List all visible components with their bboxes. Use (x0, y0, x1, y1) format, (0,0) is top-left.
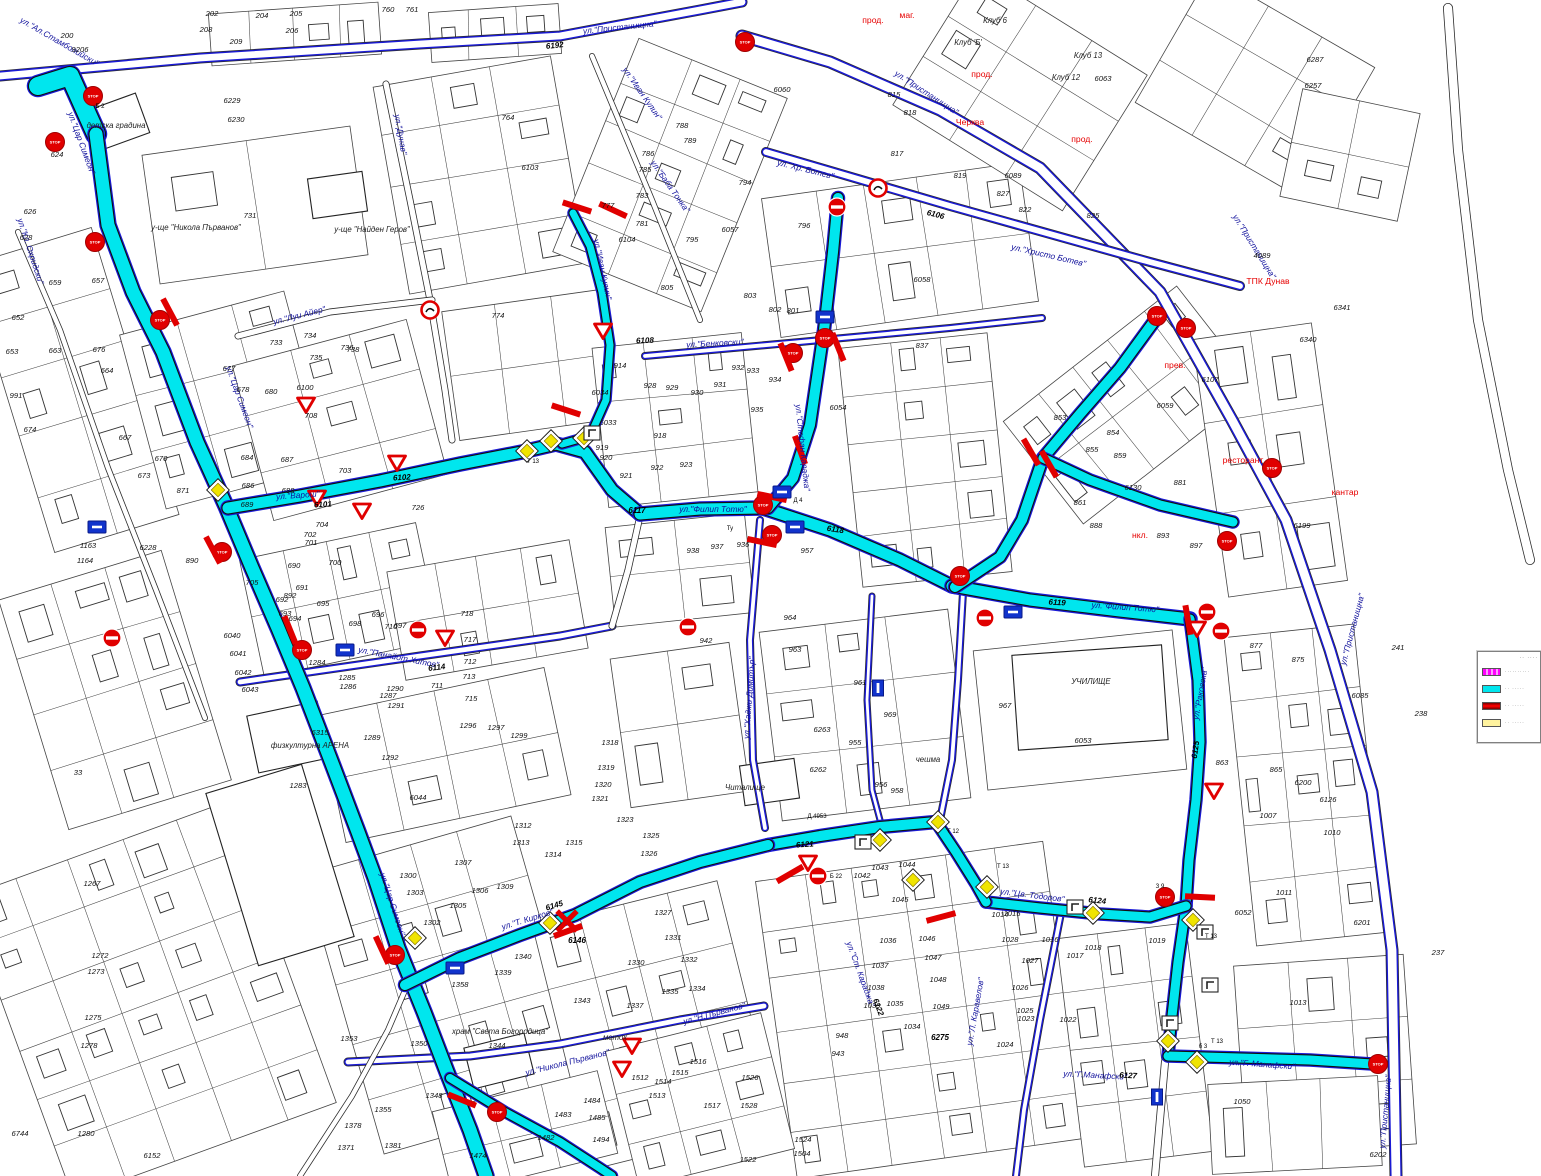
parcel-number-label: 796 (798, 221, 811, 230)
poi-label-red: прод. (971, 69, 992, 79)
parcel-number-label: 1494 (593, 1135, 610, 1144)
parcel-number-label: 963 (789, 645, 802, 654)
parcel-number-label: 628 (20, 233, 33, 242)
parcel-number-label: 1026 (1012, 983, 1030, 992)
building-outline (968, 490, 994, 518)
parcel-number-label: 1296 (460, 721, 478, 730)
building-outline (883, 1029, 904, 1052)
map-canvas[interactable]: STOPSTOPSTOPSTOPSTOPSTOPSTOPSTOPSTOPSTOP… (0, 0, 1541, 1176)
parcel-number-label: 1331 (665, 933, 682, 942)
info-sign-icon (446, 962, 464, 974)
sign-code-label: Т 12 (947, 829, 960, 835)
parcel-number-label: 1287 (380, 691, 398, 700)
parcel-number-label: 789 (684, 136, 697, 145)
parcel-number-label: 1283 (290, 781, 308, 790)
parcel-number-label: 677 (223, 364, 236, 373)
cadastral-map: STOPSTOPSTOPSTOPSTOPSTOPSTOPSTOPSTOPSTOP… (0, 0, 1541, 1176)
parcel-number-label: 817 (891, 149, 904, 158)
stop-sign-icon: STOP (488, 1103, 507, 1122)
parcel-number-label: 938 (687, 546, 700, 555)
poi-label-red: прод. (862, 15, 883, 25)
parcel-number-label: 818 (904, 108, 917, 117)
parcel-number-label: 626 (24, 207, 37, 216)
cyan-swatch-icon (1482, 685, 1501, 693)
parcel-number-label: 690 (288, 561, 301, 570)
poi-label: Клуб 6 (983, 16, 1008, 25)
parcel-number-label: 935 (751, 405, 764, 414)
parcel-number-label: 802 (769, 305, 782, 314)
parcel-number-label: 1343 (574, 996, 592, 1005)
parcel-number-label: 6228 (140, 543, 158, 552)
street-name-label: ул."Ал.Стамболийски" (18, 14, 102, 68)
parcel-number-label: 1314 (545, 850, 562, 859)
stop-sign-icon: STOP (1369, 1055, 1388, 1074)
building-outline (1215, 346, 1248, 386)
parcel-number-label: 785 (639, 165, 652, 174)
building-outline (171, 172, 217, 211)
parcel-number-label: 827 (997, 189, 1010, 198)
signal-box-icon (584, 426, 600, 440)
parcel-number-label: 1038 (868, 983, 886, 992)
parcel-number-label: 726 (412, 503, 425, 512)
svg-text:STOP: STOP (88, 93, 99, 98)
no-entry-sign-icon (976, 609, 994, 627)
parcel-number-label: 1504 (794, 1149, 811, 1158)
parcel-number-label: 961 (854, 678, 867, 687)
parcel-number-label: 1302 (424, 918, 442, 927)
road-number-label: 6102 (393, 473, 412, 483)
building-outline (308, 23, 329, 40)
poi-label: у-ще "Никола Първанов" (150, 223, 242, 232)
parcel-number-label: 1516 (690, 1057, 708, 1066)
parcel-number-label: 890 (186, 556, 199, 565)
parcel-number-label: 1517 (704, 1101, 722, 1110)
building-outline (980, 1013, 995, 1031)
parcel-number-label: 774 (492, 311, 505, 320)
parcel-number-label: 861 (1074, 498, 1087, 507)
parcel-number-label: 209 (229, 37, 243, 46)
parcel-number-label: 1275 (85, 1013, 103, 1022)
building-outline (1223, 1107, 1244, 1157)
street-name-label: ул."Пристанищна" (1230, 212, 1279, 282)
give-way-sign-icon (354, 504, 371, 519)
parcel-number-label: 1485 (589, 1113, 607, 1122)
parcel-number-label: 1045 (892, 895, 910, 904)
parcel-number-label: 653 (6, 347, 19, 356)
parcel-number-label: 6034 (592, 388, 609, 397)
parcel-number-label: 1320 (595, 780, 613, 789)
parcel-number-label: 1024 (997, 1040, 1014, 1049)
building-outline (899, 348, 916, 371)
city-block (553, 38, 788, 311)
parcel-number-label: 1522 (740, 1155, 758, 1164)
parcel-number-label: 1358 (452, 980, 470, 989)
parcel-number-label: 1513 (649, 1091, 667, 1100)
road-number-label: 6192 (545, 40, 564, 51)
parcel-number-label: 881 (1174, 478, 1187, 487)
parcel-number-label: 1348 (426, 1091, 444, 1100)
stop-sign-icon: STOP (46, 133, 65, 152)
parcel-number-label: 670 (155, 454, 168, 463)
no-entry-sign-icon (679, 618, 697, 636)
building-outline (682, 664, 713, 689)
parcel-number-label: 1042 (854, 871, 872, 880)
parcel-number-label: 1039 (864, 1001, 882, 1010)
parcel-number-label: 1339 (495, 968, 513, 977)
parcel-number-label: 1315 (566, 838, 584, 847)
parcel-number-label: 6341 (1334, 303, 1351, 312)
parcel-number-label: 6315 (312, 728, 330, 737)
parcel-number-label: 795 (686, 235, 699, 244)
parcel-number-label: 6052 (1235, 908, 1253, 917)
parcel-number-label: 695 (317, 599, 330, 608)
parcel-number-label: 1309 (497, 882, 515, 891)
parcel-number-label: 888 (1090, 521, 1103, 530)
parcel-number-label: 764 (502, 113, 515, 122)
legend-title: ·· ···· (1482, 655, 1538, 663)
parcel-number-label: 955 (849, 738, 862, 747)
road-number-label: 6124 (1088, 895, 1107, 906)
parcel-number-label: 6130 (1125, 483, 1143, 492)
parcel-number-label: 919 (596, 443, 609, 452)
parcel-number-label: 871 (177, 486, 190, 495)
parcel-number-label: 667 (119, 433, 132, 442)
stop-sign-icon: STOP (736, 33, 755, 52)
parcel-number-label: 937 (711, 542, 724, 551)
poi-label: Читалище (725, 783, 766, 792)
parcel-number-label: 200 (60, 31, 74, 40)
parcel-number-label: 708 (305, 411, 318, 420)
parcel-number-label: 205 (289, 9, 303, 18)
poi-label-red: ТПК Дунав (1246, 276, 1290, 286)
parcel-number-label: 717 (464, 635, 477, 644)
parcel-number-label: 964 (784, 613, 797, 622)
parcel-number-label: 1043 (872, 863, 890, 872)
parcel-number-label: 6057 (722, 225, 740, 234)
parcel-number-label: 1010 (1324, 828, 1342, 837)
parcel-number-label: 6201 (1354, 918, 1371, 927)
parcel-number-label: 711 (431, 681, 443, 690)
parcel-number-label: 1355 (375, 1105, 393, 1114)
one-way-sign-icon (1152, 1089, 1163, 1105)
parcel-number-label: 1019 (1149, 936, 1167, 945)
parcel-number-label: 237 (1431, 948, 1445, 957)
parcel-number-label: 805 (661, 283, 674, 292)
parcel-number-label: 6262 (810, 765, 828, 774)
parcel-number-label: 786 (642, 149, 655, 158)
svg-text:STOP: STOP (767, 532, 778, 537)
building-outline (946, 346, 970, 362)
info-sign-icon (336, 644, 354, 656)
parcel-number-label: 689 (241, 500, 254, 509)
building-outline (635, 743, 663, 785)
parcel-number-label: 684 (241, 453, 254, 462)
parcel-number-label: 659 (49, 278, 62, 287)
parcel-number-label: 1353 (341, 1034, 359, 1043)
parcel-number-label: 1482 (538, 1133, 556, 1142)
sign-code-label: б 3 (1199, 1044, 1208, 1050)
poi-label-red: Черква (956, 117, 985, 127)
parcel-number-label: 701 (305, 538, 318, 547)
parcel-number-label: 957 (801, 546, 814, 555)
parcel-number-label: 1292 (382, 753, 400, 762)
parcel-number-label: 815 (888, 90, 901, 99)
parcel-number-label: 1319 (598, 763, 616, 772)
parcel-number-label: 678 (237, 385, 250, 394)
parcel-number-label: 933 (747, 366, 760, 375)
svg-text:STOP: STOP (1160, 894, 1171, 899)
svg-text:STOP: STOP (1222, 538, 1233, 543)
signal-box-icon (1067, 900, 1083, 914)
parcel-number-label: 1286 (340, 682, 358, 691)
poi-label: детска градина (87, 121, 147, 130)
info-sign-icon (773, 486, 791, 498)
svg-text:STOP: STOP (297, 647, 308, 652)
parcel-number-label: 686 (242, 481, 255, 490)
legend-item-highlight-red: ·· ····· (1482, 697, 1538, 714)
city-block (592, 333, 758, 508)
parcel-number-label: 1036 (880, 936, 898, 945)
parcel-number-label: 664 (101, 366, 114, 375)
parcel-number-label: 33 (74, 768, 83, 777)
parcel-number-label: 1049 (933, 1002, 951, 1011)
svg-text:STOP: STOP (90, 239, 101, 244)
building-outline (1241, 532, 1263, 559)
parcel-number-label: 238 (1414, 709, 1428, 718)
building-outline (700, 576, 734, 606)
building-outline (1289, 704, 1309, 728)
parcel-number-label: 1305 (450, 901, 468, 910)
map-legend: ·· ···· ·········· ·· ····· ·· ····· ·· … (1477, 651, 1541, 743)
svg-text:STOP: STOP (955, 573, 966, 578)
parcel-number-label: 1334 (689, 984, 706, 993)
sign-code-label: З 9 (1156, 884, 1165, 890)
stop-sign-icon: STOP (1177, 319, 1196, 338)
poi-label: Клуб 'Б' (954, 38, 982, 47)
stop-sign-icon: STOP (1148, 307, 1167, 326)
parcel-number-label: 652 (12, 313, 25, 322)
parcel-number-label: 6058 (914, 275, 932, 284)
road-number-label: 6145 (544, 899, 564, 913)
svg-text:STOP: STOP (50, 139, 61, 144)
building-outline (1012, 645, 1168, 750)
parcel-number-label: 1047 (925, 953, 943, 962)
yellow-swatch-icon (1482, 719, 1501, 727)
parcel-number-label: 1330 (628, 958, 646, 967)
parcel-number-label: 1526 (742, 1073, 760, 1082)
poi-label-red: ресторант (1223, 455, 1264, 465)
signal-box-icon (855, 835, 871, 849)
building-outline (958, 440, 986, 467)
parcel-number-label: 6152 (144, 1151, 162, 1160)
parcel-number-label: 1278 (81, 1041, 99, 1050)
parcel-number-label: 674 (24, 425, 37, 434)
parcel-number-label: 680 (265, 387, 278, 396)
parcel-number-label: 1323 (617, 815, 635, 824)
parcel-number-label: 6229 (224, 96, 242, 105)
parcel-number-label: 1028 (1002, 935, 1020, 944)
parcel-number-label: 1035 (887, 999, 905, 1008)
parcel-number-label: 1007 (1260, 811, 1278, 820)
parcel-number-label: 6040 (224, 631, 242, 640)
parcel-number-label: 6107 (1202, 375, 1220, 384)
building-outline (1333, 759, 1355, 786)
sign-code-label: Д 4 (793, 498, 803, 504)
parcel-number-label: 761 (406, 5, 419, 14)
parcel-number-label: 1037 (872, 961, 890, 970)
parcel-number-label: 6089 (1005, 171, 1023, 180)
parcel-number-label: 794 (739, 178, 752, 187)
building-outline (1241, 652, 1262, 671)
sign-code-label: Т 13 (527, 459, 540, 465)
parcel-number-label: 920 (600, 453, 613, 462)
parcel-number-label: 777 (602, 201, 615, 210)
parcel-number-label: 624 (51, 150, 64, 159)
parcel-number-label: 1381 (385, 1141, 402, 1150)
legend-item-highlight-magenta: ·········· (1482, 663, 1538, 680)
red-swatch-icon (1482, 702, 1501, 710)
building-outline (526, 15, 544, 32)
parcel-number-label: 1326 (641, 849, 659, 858)
parcel-number-label: 1044 (899, 860, 916, 869)
parcel-number-label: 733 (270, 338, 283, 347)
parcel-number-label: 241 (1391, 643, 1405, 652)
parcel-number-label: 1017 (1067, 951, 1085, 960)
parcel-number-label: 6257 (1305, 81, 1323, 90)
svg-text:STOP: STOP (155, 317, 166, 322)
road-number-label: 6119 (1048, 598, 1066, 608)
parcel-number-label: 6100 (297, 383, 315, 392)
parcel-number-label: 958 (891, 786, 904, 795)
parcel-number-label: 1306 (472, 886, 490, 895)
svg-text:STOP: STOP (788, 350, 799, 355)
parcel-number-label: 1291 (388, 701, 405, 710)
svg-text:STOP: STOP (1152, 313, 1163, 318)
road-number-label: 6108 (636, 336, 655, 346)
no-overtaking-sign-icon (870, 180, 887, 197)
sign-code-label: Т 13 (1205, 934, 1218, 940)
parcel-number-label: 1299 (511, 731, 529, 740)
parcel-number-label: 6202 (1370, 1150, 1388, 1159)
parcel-number-label: 921 (620, 471, 633, 480)
parcel-number-label: 6085 (1352, 691, 1370, 700)
poi-label: физкултурна АРЕНА (271, 741, 349, 750)
parcel-number-label: 991 (10, 391, 23, 400)
parcel-number-label: 1337 (627, 1001, 645, 1010)
parcel-number-label: 1303 (407, 888, 425, 897)
parcel-number-label: 825 (1087, 211, 1100, 220)
parcel-number-label: 1016 (1042, 935, 1060, 944)
parcel-number-label: 6126 (1320, 795, 1338, 804)
parcel-number-label: 822 (1019, 205, 1032, 214)
stop-sign-icon: STOP (951, 567, 970, 586)
one-way-sign-icon (873, 680, 884, 696)
poi-label-red: нкл. (1132, 530, 1148, 540)
parcel-number-label: 1022 (1060, 1015, 1078, 1024)
building-outline (739, 758, 799, 805)
parcel-number-label: 713 (463, 672, 476, 681)
parcel-number-label: 738 (347, 345, 360, 354)
parcel-number-label: 6043 (242, 685, 260, 694)
svg-text:STOP: STOP (758, 502, 769, 507)
parcel-number-label: 202 (205, 9, 219, 18)
parcel-number-label: 967 (999, 701, 1012, 710)
parcel-number-label: 705 (246, 578, 259, 587)
city-blocks-layer (0, 0, 1420, 1176)
sign-code-label: Д 4953 (807, 814, 827, 820)
parcel-number-label: 6103 (522, 163, 540, 172)
parcel-number-label: 863 (1216, 758, 1229, 767)
parcel-number-label: 922 (651, 463, 664, 472)
parcel-number-label: 206 (285, 26, 299, 35)
parcel-number-label: 6060 (774, 85, 792, 94)
building-outline (1307, 977, 1334, 1011)
road-number-label: 6146 (568, 936, 586, 945)
parcel-number-label: 6054 (830, 403, 847, 412)
building-outline (1358, 177, 1382, 199)
no-overtaking-sign-icon (422, 302, 439, 319)
parcel-number-label: 1514 (655, 1077, 672, 1086)
parcel-number-label: 1272 (92, 951, 110, 960)
parcel-number-label: 760 (382, 5, 395, 14)
parcel-number-label: 698 (349, 619, 362, 628)
poi-label: храм "Света Богородица" (451, 1027, 549, 1036)
parcel-number-label: 6263 (814, 725, 832, 734)
parcel-number-label: 969 (884, 710, 897, 719)
no-entry-sign-icon (1198, 603, 1216, 621)
parcel-number-label: 1325 (643, 831, 661, 840)
parcel-number-label: 1050 (1234, 1097, 1252, 1106)
parcel-number-label: 1483 (555, 1110, 573, 1119)
parcel-number-label: 1350 (411, 1039, 429, 1048)
parcel-number-label: 1048 (930, 975, 948, 984)
parcel-number-label: 914 (614, 361, 627, 370)
parcel-number-label: 928 (644, 381, 657, 390)
parcel-number-label: 1512 (632, 1073, 650, 1082)
parcel-number-label: 208 (199, 25, 213, 34)
parcel-number-label: 956 (875, 780, 888, 789)
parcel-number-label: 6200 (1295, 778, 1313, 787)
poi-label: Клуб 12 (1052, 73, 1081, 82)
parcel-number-label: 801 (787, 306, 800, 315)
parcel-number-label: 865 (1270, 765, 1283, 774)
building-outline (1043, 1103, 1065, 1128)
parcel-number-label: 6042 (235, 668, 253, 677)
parcel-number-label: 837 (916, 341, 929, 350)
parcel-number-label: 1515 (672, 1068, 690, 1077)
sign-code-label: Б 2 (96, 104, 106, 110)
parcel-number-label: 1289 (364, 733, 382, 742)
parcel-number-label: 1046 (919, 934, 937, 943)
building-outline (838, 633, 860, 652)
parcel-number-label: 6199 (1294, 521, 1312, 530)
building-outline (658, 409, 682, 425)
parcel-number-label: 204 (255, 11, 269, 20)
give-way-sign-icon (1206, 784, 1223, 799)
road-number-label: 6275 (931, 1033, 949, 1042)
info-sign-icon (786, 521, 804, 533)
svg-text:STOP: STOP (1181, 325, 1192, 330)
no-entry-sign-icon (828, 198, 846, 216)
sign-code-label: Т 13 (1211, 1039, 1224, 1045)
poi-label: метох (603, 1033, 628, 1042)
building-outline (882, 197, 913, 223)
highlighted-street (768, 822, 936, 845)
parcel-number-label: 6104 (619, 235, 636, 244)
parcel-number-label: 1164 (77, 556, 93, 565)
road-number-label: 6117 (628, 506, 646, 515)
parcel-number-label: 1280 (78, 1129, 96, 1138)
